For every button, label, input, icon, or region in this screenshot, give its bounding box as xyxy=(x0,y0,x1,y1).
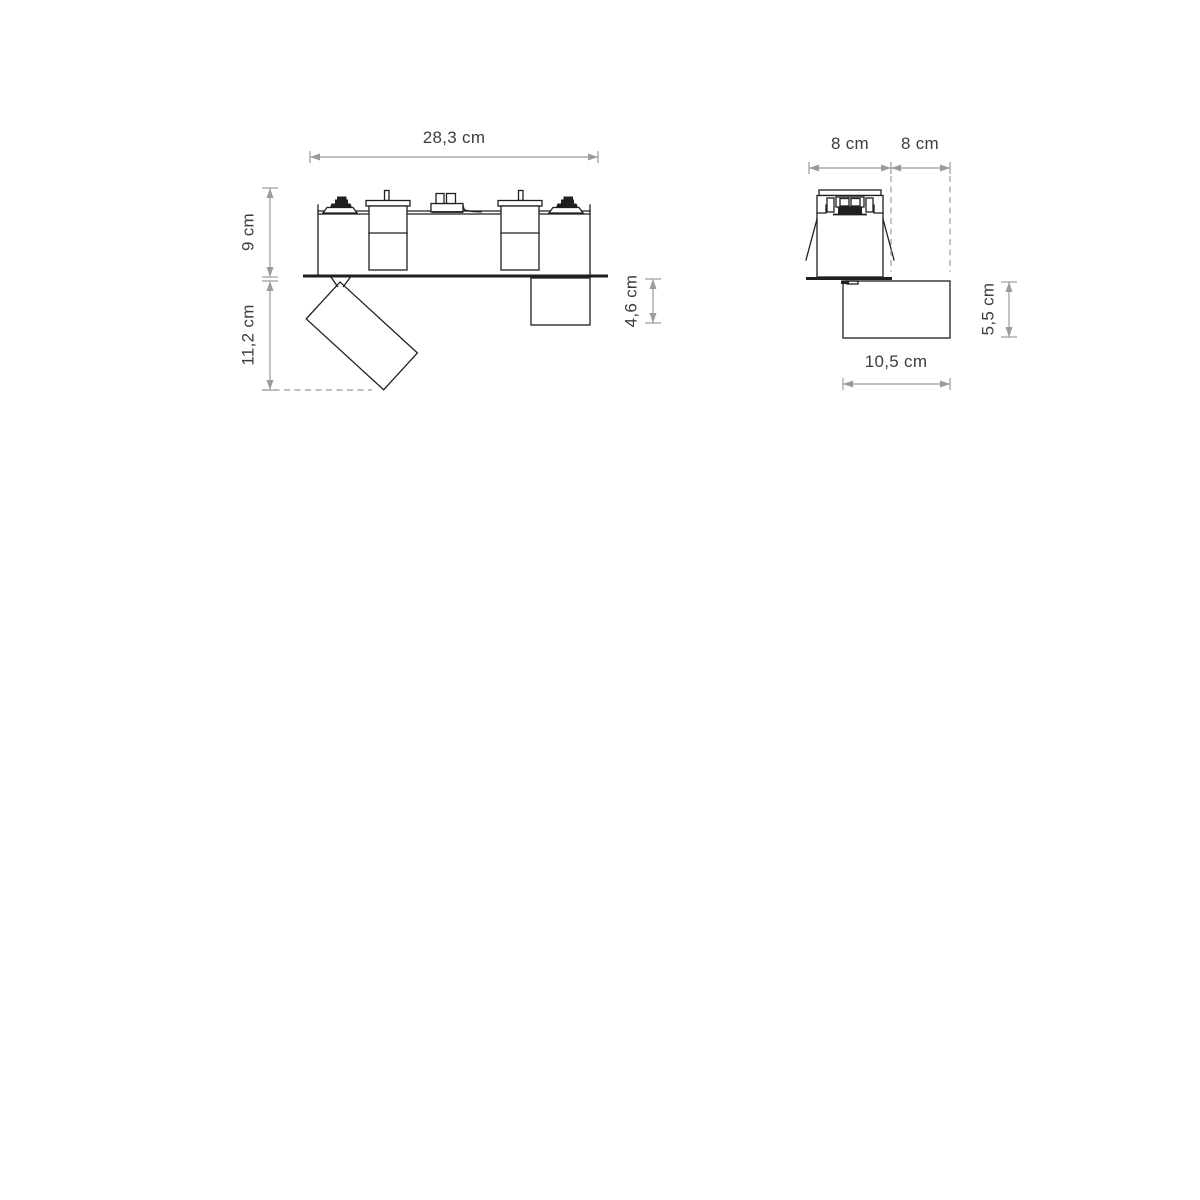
dim-total-width: 28,3 cm xyxy=(310,128,598,163)
arrowhead-left-icon xyxy=(891,165,901,172)
spring-clip-left xyxy=(806,219,817,260)
arrowhead-down-icon xyxy=(650,313,657,323)
dim-label-total-width: 28,3 cm xyxy=(423,128,486,147)
front-head-box xyxy=(531,278,590,325)
knob-base xyxy=(549,208,583,214)
front-track xyxy=(303,205,608,276)
side-head-box xyxy=(843,281,950,338)
front-tilted-spot xyxy=(306,282,417,390)
arrowhead-left-icon xyxy=(843,381,853,388)
arrowhead-right-icon xyxy=(940,165,950,172)
module-pin xyxy=(385,191,390,201)
dim-label-head-depth: 4,6 cm xyxy=(622,275,641,328)
arrowhead-down-icon xyxy=(267,267,274,277)
knob-tier xyxy=(330,204,352,208)
module-body xyxy=(501,206,539,270)
arrowhead-up-icon xyxy=(650,279,657,289)
front-view-drawing: 28,3 cm 9 cm 11,2 cm 4,6 cm xyxy=(240,120,680,400)
profile-cap xyxy=(819,190,881,196)
module-pin xyxy=(519,191,524,201)
dim-head-height: 5,5 cm xyxy=(979,282,1018,337)
adapter-slot-left xyxy=(827,198,834,212)
connector-terminal xyxy=(447,194,456,204)
front-right-module xyxy=(498,191,542,271)
dim-label-head-length: 10,5 cm xyxy=(865,352,928,371)
arrowhead-right-icon xyxy=(881,165,891,172)
dim-label-head-height: 5,5 cm xyxy=(979,283,998,336)
spring-clip-right xyxy=(883,219,894,260)
knob-cap xyxy=(561,200,574,204)
knob-top xyxy=(337,197,347,200)
front-left-module xyxy=(366,191,410,271)
adapter-slot-right xyxy=(866,198,873,212)
knob-top xyxy=(564,197,574,200)
arrowhead-left-icon xyxy=(809,165,819,172)
side-track-profile xyxy=(806,190,894,284)
drawing-canvas: 28,3 cm 9 cm 11,2 cm 4,6 cm xyxy=(0,0,1200,1200)
tilted-spot-body xyxy=(306,282,417,390)
arrowhead-down-icon xyxy=(1006,327,1013,337)
dim-recess-width: 8 cm xyxy=(809,134,891,174)
dim-recessed-height: 9 cm xyxy=(239,188,279,277)
dim-head-depth: 4,6 cm xyxy=(622,275,662,328)
arrowhead-down-icon xyxy=(267,380,274,390)
front-right-knob xyxy=(549,197,583,214)
arrowhead-up-icon xyxy=(1006,282,1013,292)
dim-label-recessed-height: 9 cm xyxy=(239,213,258,251)
dim-spot-projection: 11,2 cm xyxy=(239,281,279,390)
dim-side-clearance: 8 cm xyxy=(891,134,950,174)
head-box-body xyxy=(843,281,950,338)
arrowhead-right-icon xyxy=(588,154,598,161)
ceiling-tab xyxy=(841,281,849,285)
arrowhead-up-icon xyxy=(267,188,274,198)
front-left-knob xyxy=(323,197,357,214)
profile-adapter xyxy=(827,197,873,215)
arrowhead-up-icon xyxy=(267,281,274,291)
arrowhead-left-icon xyxy=(310,154,320,161)
side-view-drawing: 8 cm 8 cm 5,5 cm 10,5 cm xyxy=(770,130,1030,400)
knob-cap xyxy=(335,200,348,204)
dim-head-length: 10,5 cm xyxy=(843,352,950,390)
dim-label-recess-width: 8 cm xyxy=(831,134,869,153)
adapter-clamp xyxy=(838,208,862,215)
knob-tier xyxy=(556,204,578,208)
arrowhead-right-icon xyxy=(940,381,950,388)
connector-base xyxy=(431,204,463,213)
module-cap xyxy=(366,201,410,207)
front-middle-connector xyxy=(431,194,481,213)
connector-terminal xyxy=(436,194,444,204)
dim-label-side-clearance: 8 cm xyxy=(901,134,939,153)
module-body xyxy=(369,206,407,270)
dim-label-spot-projection: 11,2 cm xyxy=(239,304,258,365)
knob-base xyxy=(323,208,357,214)
module-cap xyxy=(498,201,542,207)
